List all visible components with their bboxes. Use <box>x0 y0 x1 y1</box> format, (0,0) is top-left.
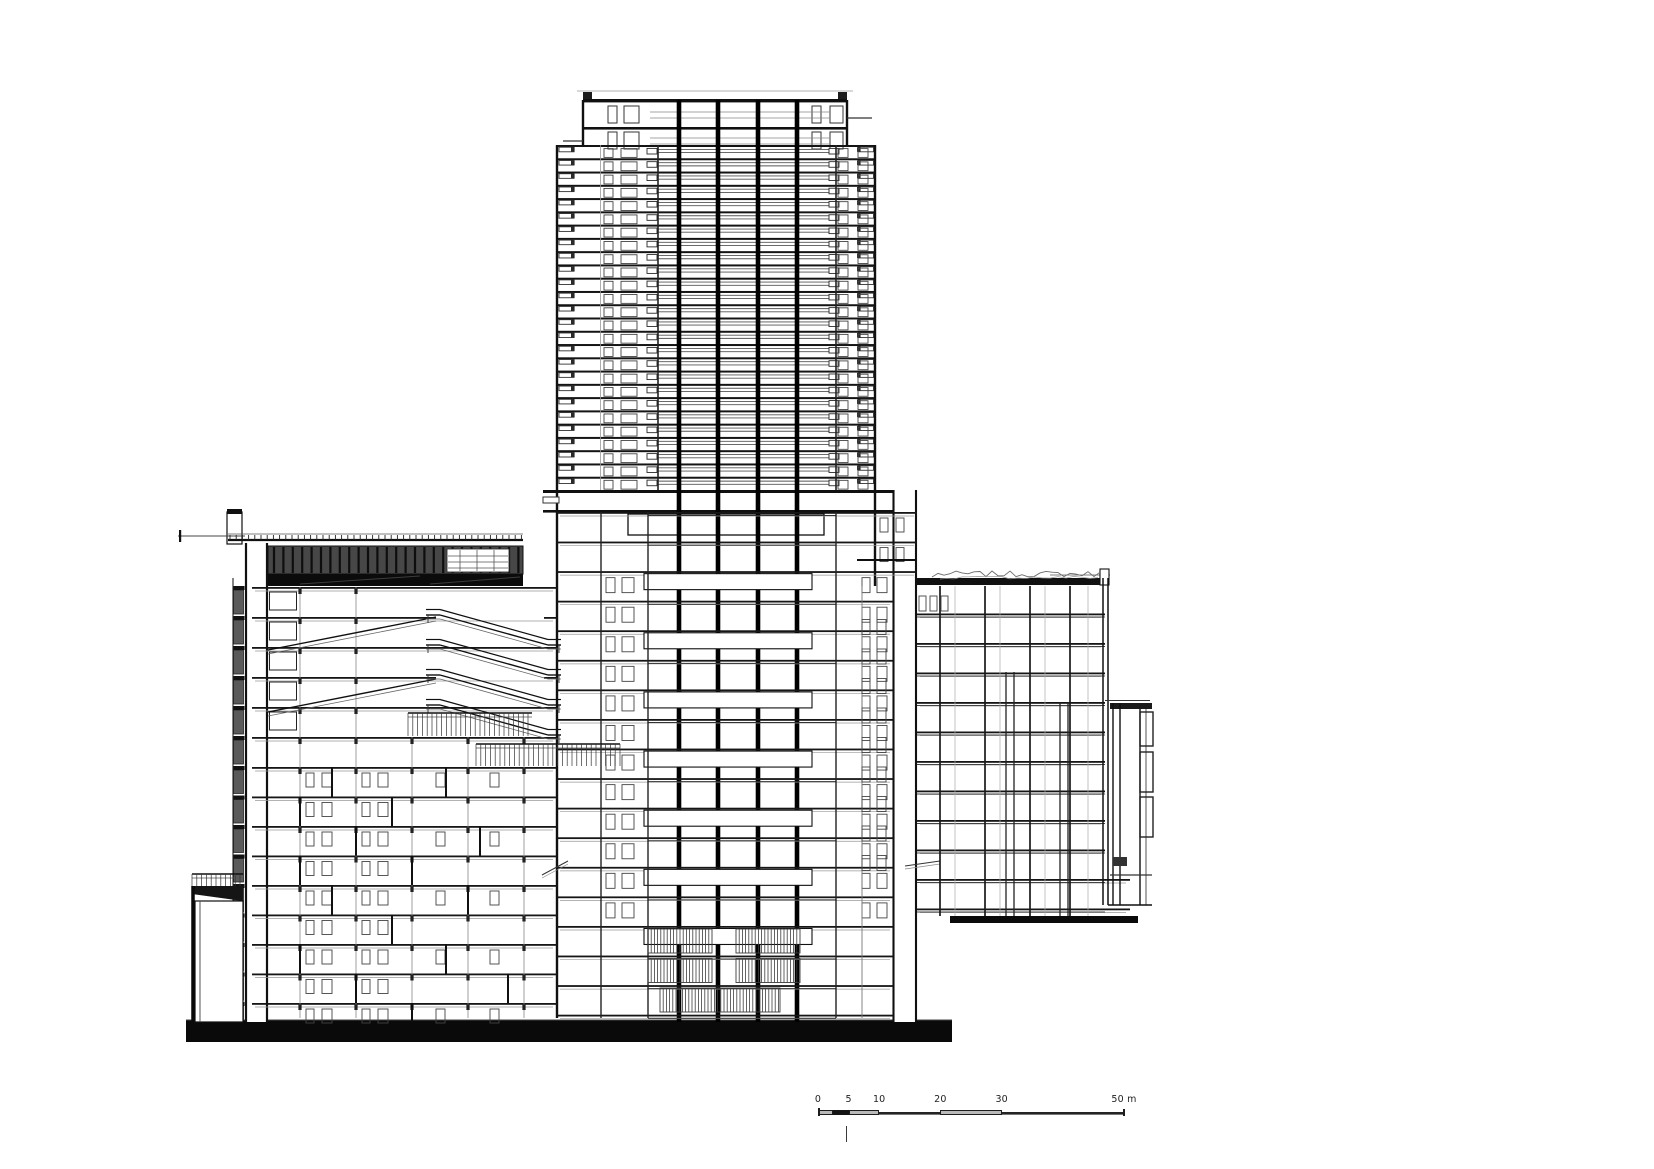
column-node <box>298 679 301 685</box>
facade-bracket-tick <box>571 426 575 431</box>
window-frame <box>604 387 613 396</box>
curtain-panel <box>234 740 244 764</box>
window-frame <box>362 950 370 964</box>
wing-floor-slab <box>252 974 557 976</box>
facade-bracket-tick <box>571 147 575 152</box>
window-frame <box>838 268 848 277</box>
facade-bracket-tick <box>857 399 861 404</box>
screen-louvers <box>178 530 523 586</box>
column-node <box>410 946 413 952</box>
facade-bracket <box>859 346 874 351</box>
window-frame <box>862 814 870 829</box>
window-frame <box>838 361 848 370</box>
atrium-partial-slab <box>252 617 436 619</box>
window-frame <box>838 228 848 237</box>
left-wing <box>227 509 557 1023</box>
core-beam-hook <box>829 162 839 168</box>
curtain-slab-cap <box>233 706 245 710</box>
scale-bar-label: 30 <box>995 1094 1008 1105</box>
window-frame <box>606 814 615 829</box>
window-frame <box>877 903 887 918</box>
window-frame <box>306 891 314 905</box>
podium-floor-slab <box>557 896 893 898</box>
curtain-slab-cap <box>233 676 245 680</box>
window-frame <box>306 773 314 787</box>
window-frame <box>877 696 887 711</box>
stair-box <box>270 622 297 640</box>
core-beam-hook <box>829 228 839 234</box>
core-beam-hook <box>647 387 657 393</box>
window-frame <box>436 950 445 964</box>
cap-corner-block <box>838 92 847 100</box>
facade-bracket <box>859 439 874 444</box>
window-frame <box>622 755 634 770</box>
window-frame <box>604 348 613 357</box>
window-frame <box>362 803 370 817</box>
facade-bracket-tick <box>857 267 861 272</box>
window-frame <box>378 980 388 994</box>
column-node <box>522 1005 525 1011</box>
window-frame <box>877 725 887 740</box>
facade-bracket <box>859 174 874 179</box>
window-frame <box>838 401 848 410</box>
core-beam-hook <box>647 308 657 314</box>
window-frame <box>606 844 615 859</box>
core-beam-band <box>644 633 812 649</box>
window-frame <box>877 755 887 770</box>
curtain-slab-cap <box>233 855 245 859</box>
podium-floor-slab <box>557 571 917 573</box>
facade-bracket-tick <box>857 452 861 457</box>
facade-bracket-tick <box>571 227 575 232</box>
column-node <box>298 739 301 745</box>
column-node <box>522 739 525 745</box>
core-beam-hook <box>829 281 839 287</box>
window-frame <box>604 162 613 171</box>
window-frame <box>622 903 634 918</box>
core-beam-band <box>644 574 812 590</box>
wing-floor-slab <box>252 944 557 946</box>
window-frame <box>322 950 332 964</box>
window-frame <box>604 454 613 463</box>
facade-bracket <box>859 479 874 484</box>
window-frame <box>622 814 634 829</box>
scale-bar-segment <box>879 1112 940 1114</box>
column-node <box>298 975 301 981</box>
drawing-sheet: 0 5 10 20 30 50 m <box>0 0 1654 1169</box>
core-beam-hook <box>647 215 657 221</box>
facade-bracket-tick <box>571 320 575 325</box>
facade-bracket-tick <box>857 386 861 391</box>
window-frame <box>378 891 388 905</box>
window-frame <box>621 162 637 171</box>
curtain-slab-cap <box>233 586 245 590</box>
curtain-panel <box>234 680 244 704</box>
curtain-panel <box>234 650 244 674</box>
window-frame <box>877 578 887 593</box>
window-frame <box>838 188 848 197</box>
pillar-fill <box>893 490 917 1022</box>
window-frame <box>838 295 848 304</box>
core-beam-hook <box>829 321 839 327</box>
facade-bracket-tick <box>571 160 575 165</box>
column-node <box>466 739 469 745</box>
scale-bar-endtick <box>1123 1109 1125 1116</box>
window-frame <box>621 427 637 436</box>
escalator-rail <box>440 670 548 700</box>
cap-corner-block <box>583 92 592 100</box>
window-frame <box>838 149 848 158</box>
annex-dark-box <box>1113 857 1127 866</box>
window-frame <box>862 725 870 740</box>
window-frame <box>621 348 637 357</box>
column-node <box>354 1005 357 1011</box>
column-node <box>354 649 357 655</box>
facade-bracket-tick <box>857 439 861 444</box>
scale-bar-segment <box>1002 1112 1124 1114</box>
core-beam-hook <box>829 467 839 473</box>
window-frame <box>621 334 637 343</box>
podium-floor-slab <box>557 512 917 514</box>
window-frame <box>378 773 388 787</box>
window-frame <box>838 162 848 171</box>
window-frame <box>490 891 499 905</box>
facade-bracket-tick <box>857 174 861 179</box>
core-beam-hook <box>647 347 657 353</box>
window-frame <box>862 666 870 681</box>
column-node <box>354 619 357 625</box>
core-beam-hook <box>829 361 839 367</box>
window-frame <box>838 374 848 383</box>
facade-bracket-tick <box>571 346 575 351</box>
wing-floor-slab <box>917 879 1130 881</box>
window-frame <box>838 441 848 450</box>
column-node <box>298 769 301 775</box>
column-node <box>466 916 469 922</box>
window-frame <box>862 844 870 859</box>
window-frame <box>604 241 613 250</box>
core-beam-band <box>644 810 812 826</box>
core-beam-hook <box>829 334 839 340</box>
window-frame <box>362 980 370 994</box>
right-annex <box>1105 701 1153 906</box>
curtain-panel <box>234 590 244 614</box>
curtain-panel <box>234 710 244 734</box>
wing-floor-slab <box>917 820 1105 822</box>
annex-top-cap <box>1110 703 1152 709</box>
window-frame <box>621 268 637 277</box>
cap-window <box>608 106 617 123</box>
column-node <box>522 798 525 804</box>
scale-bar-segment <box>833 1110 848 1115</box>
window-frame <box>606 637 615 652</box>
core-beam-hook <box>829 401 839 407</box>
core-beam-hook <box>647 334 657 340</box>
wing-floor-slab <box>252 826 557 828</box>
window-frame <box>621 308 637 317</box>
column-node <box>298 649 301 655</box>
column-node <box>410 798 413 804</box>
facade-bracket-tick <box>857 280 861 285</box>
curtain-slab-cap <box>233 616 245 620</box>
window-frame <box>622 637 634 652</box>
facade-bracket-tick <box>571 240 575 245</box>
window-frame <box>621 202 637 211</box>
window-frame <box>606 725 615 740</box>
window-frame <box>838 348 848 357</box>
window-frame <box>362 773 370 787</box>
window-frame <box>621 387 637 396</box>
column-node <box>298 887 301 893</box>
wing-bottom-bar <box>950 916 1138 923</box>
wing-floor-slab <box>917 614 1105 616</box>
facade-bracket-tick <box>571 413 575 418</box>
core-beam-hook <box>829 480 839 486</box>
column-node <box>354 709 357 715</box>
window-frame <box>604 175 613 184</box>
window-frame <box>604 255 613 264</box>
facade-bracket-tick <box>857 479 861 484</box>
facade-bracket <box>859 466 874 471</box>
window-frame <box>306 832 314 846</box>
core-beam-hook <box>647 414 657 420</box>
window-frame <box>877 844 887 859</box>
facade-bracket <box>859 306 874 311</box>
column-node <box>410 887 413 893</box>
facade-bracket-tick <box>571 439 575 444</box>
core-beam-hook <box>647 281 657 287</box>
window-frame <box>604 361 613 370</box>
window-frame <box>606 785 615 800</box>
core-beam-hook <box>647 454 657 460</box>
window-frame <box>862 637 870 652</box>
column-node <box>354 887 357 893</box>
facade-bracket-tick <box>571 200 575 205</box>
wing-floor-slab <box>917 702 1105 704</box>
facade-bracket <box>859 147 874 152</box>
podium-floor-slab <box>557 689 893 691</box>
wing-floor-slab <box>252 885 557 887</box>
window-frame <box>621 441 637 450</box>
window-frame <box>378 950 388 964</box>
window-frame <box>838 454 848 463</box>
scale-bar: 0 5 10 20 30 50 m <box>818 1094 1148 1154</box>
core-beam-hook <box>647 440 657 446</box>
window-frame <box>322 891 332 905</box>
window-frame <box>621 215 637 224</box>
core-beam-hook <box>647 162 657 168</box>
core-beam-hook <box>647 188 657 194</box>
facade-bracket <box>859 187 874 192</box>
window-frame <box>877 637 887 652</box>
window-frame <box>877 873 887 888</box>
column-node <box>466 857 469 863</box>
window-frame <box>378 832 388 846</box>
facade-bracket-tick <box>857 360 861 365</box>
facade-bracket <box>859 333 874 338</box>
core-beam-hook <box>829 175 839 181</box>
scale-bar-label: 50 m <box>1111 1094 1136 1105</box>
facade-bracket-tick <box>571 373 575 378</box>
window-frame <box>838 414 848 423</box>
window-frame <box>378 803 388 817</box>
facade-bracket-tick <box>571 479 575 484</box>
facade-bracket-tick <box>571 267 575 272</box>
window-frame <box>622 666 634 681</box>
facade-bracket-tick <box>571 174 575 179</box>
column-node <box>410 975 413 981</box>
center-podium <box>557 490 917 1022</box>
window-frame <box>604 334 613 343</box>
core-beam-hook <box>829 294 839 300</box>
window-frame <box>436 773 445 787</box>
wing-floor-slab <box>252 737 557 739</box>
window-frame <box>862 873 870 888</box>
column-node <box>410 916 413 922</box>
window-frame <box>877 666 887 681</box>
window-frame <box>436 891 445 905</box>
window-frame <box>877 785 887 800</box>
window-frame <box>621 149 637 158</box>
core-beam-hook <box>829 387 839 393</box>
facade-bracket <box>859 293 874 298</box>
facade-bracket <box>859 452 874 457</box>
window-frame <box>306 921 314 935</box>
window-frame <box>621 255 637 264</box>
curtain-panel <box>234 829 244 853</box>
window-frame <box>838 241 848 250</box>
window-frame <box>838 387 848 396</box>
podium-floor-slab <box>557 985 893 987</box>
core-beam-hook <box>647 374 657 380</box>
facade-bracket-tick <box>857 373 861 378</box>
window-frame <box>490 773 499 787</box>
stair-box <box>270 652 297 670</box>
canopy-tick <box>179 530 181 542</box>
window-frame <box>322 803 332 817</box>
stair-box <box>270 682 297 700</box>
column-node <box>522 857 525 863</box>
window-frame <box>621 281 637 290</box>
atrium-partial-slab <box>252 677 436 679</box>
curtain-slab-cap <box>233 766 245 770</box>
facade-bracket-tick <box>857 200 861 205</box>
column-node <box>522 887 525 893</box>
facade-bracket-tick <box>857 333 861 338</box>
core-beam-hook <box>647 175 657 181</box>
building-section-drawing <box>0 0 1654 1169</box>
core-beam-band <box>644 869 812 885</box>
left-annex <box>192 874 243 1022</box>
window-frame <box>838 255 848 264</box>
railings <box>408 713 620 766</box>
facade-bracket <box>859 253 874 258</box>
facade-bracket-tick <box>571 360 575 365</box>
window-frame <box>362 921 370 935</box>
core-beam-hook <box>829 201 839 207</box>
cap-mid-slab <box>583 127 847 130</box>
core-beam-hook <box>829 241 839 247</box>
curtain-panel <box>234 620 244 644</box>
column-node <box>466 946 469 952</box>
wing-floor-slab <box>252 587 557 589</box>
scale-bar-label: 10 <box>873 1094 886 1105</box>
transfer-slab <box>543 490 917 493</box>
column-node <box>298 1005 301 1011</box>
facade-bracket-tick <box>571 187 575 192</box>
column-node <box>466 828 469 834</box>
podium-floor-slab <box>557 778 893 780</box>
window-frame <box>604 441 613 450</box>
ground-foundation <box>186 1020 952 1042</box>
wing-floor-slab <box>252 856 557 858</box>
window-frame <box>862 620 870 635</box>
facade-bracket-tick <box>857 413 861 418</box>
window-frame <box>862 649 870 664</box>
window-frame <box>862 696 870 711</box>
window-frame <box>621 480 637 489</box>
podium-floor-slab <box>557 837 893 839</box>
column-node <box>354 798 357 804</box>
wing-floor-slab <box>252 707 557 709</box>
facade-bracket-tick <box>857 426 861 431</box>
facade-bracket <box>859 280 874 285</box>
atrium-ramp <box>268 621 436 654</box>
curtain-panel <box>234 800 244 824</box>
column-node <box>298 619 301 625</box>
podium-floor-slab <box>557 749 893 751</box>
window-frame <box>838 175 848 184</box>
facade-bracket-tick <box>571 452 575 457</box>
podium-floor-slab <box>557 956 893 958</box>
window-frame <box>622 844 634 859</box>
facade-bracket <box>859 267 874 272</box>
facade-bracket-tick <box>857 147 861 152</box>
facade-bracket <box>859 360 874 365</box>
window-frame <box>877 620 886 635</box>
window-frame <box>622 607 634 622</box>
curtain-slab-cap <box>233 646 245 650</box>
window-frame <box>621 414 637 423</box>
column-node <box>354 857 357 863</box>
column-node <box>522 828 525 834</box>
window-frame <box>436 832 445 846</box>
core-beam-hook <box>647 467 657 473</box>
column-node <box>522 916 525 922</box>
core-beam-band <box>644 692 812 708</box>
window-frame <box>941 596 948 611</box>
window-frame <box>880 518 888 532</box>
facade-bracket <box>859 413 874 418</box>
escalator-rail <box>440 675 548 705</box>
core-beam-hook <box>647 241 657 247</box>
window-frame <box>604 281 613 290</box>
window-frame <box>604 228 613 237</box>
window-frame <box>606 873 615 888</box>
scale-bar-label: 0 <box>815 1094 821 1105</box>
window-frame <box>322 773 332 787</box>
core-beam-hook <box>829 347 839 353</box>
window-frame <box>622 578 634 593</box>
column-node <box>354 739 357 745</box>
wing-floor-slab <box>252 915 557 917</box>
escalator-rail <box>440 610 548 640</box>
column-node <box>466 769 469 775</box>
ramp-wedge <box>192 886 243 901</box>
podium-floor-slab <box>557 808 893 810</box>
window-frame <box>621 295 637 304</box>
core-beam-hook <box>829 427 839 433</box>
